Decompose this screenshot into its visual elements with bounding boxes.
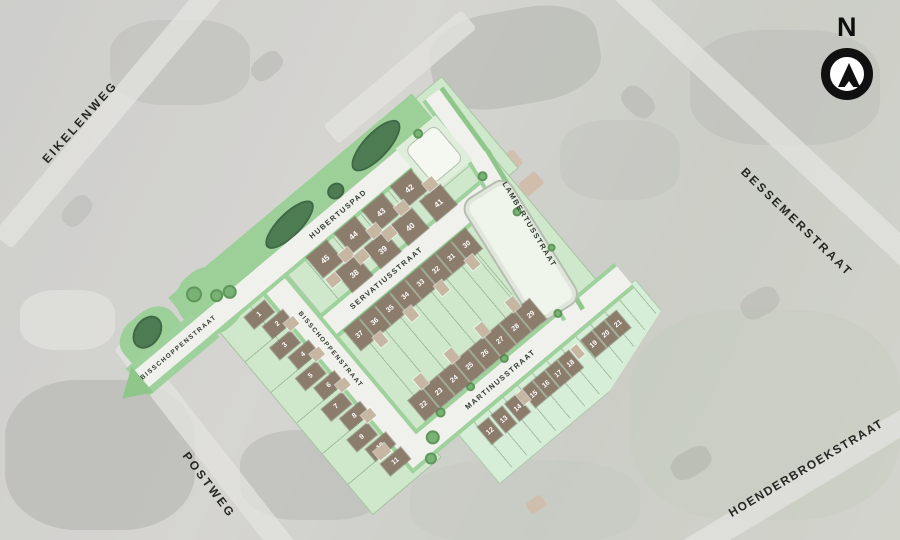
compass-north-label: N <box>837 12 857 43</box>
site-plan-map: 45 44 43 42 38 39 40 41 37 36 35 34 33 3… <box>0 0 900 540</box>
compass-needle-notch <box>844 81 854 88</box>
compass-icon <box>821 48 873 100</box>
compass: N <box>820 12 876 106</box>
